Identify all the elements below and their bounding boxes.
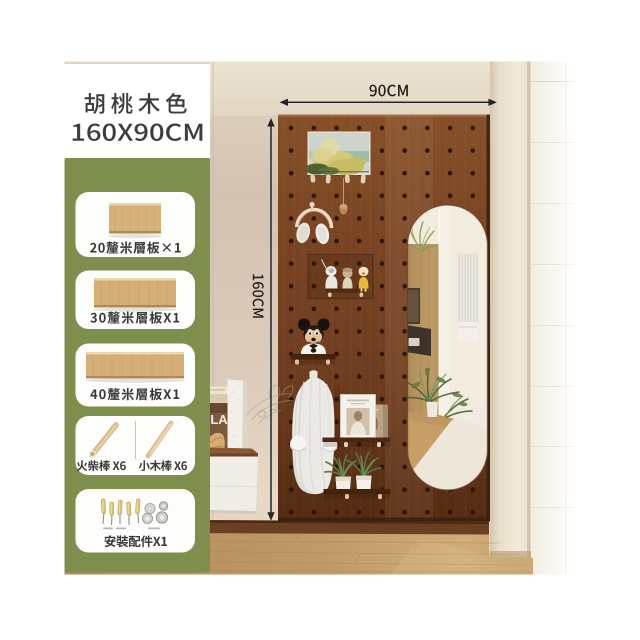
svg-text:LA: LA: [210, 412, 228, 427]
